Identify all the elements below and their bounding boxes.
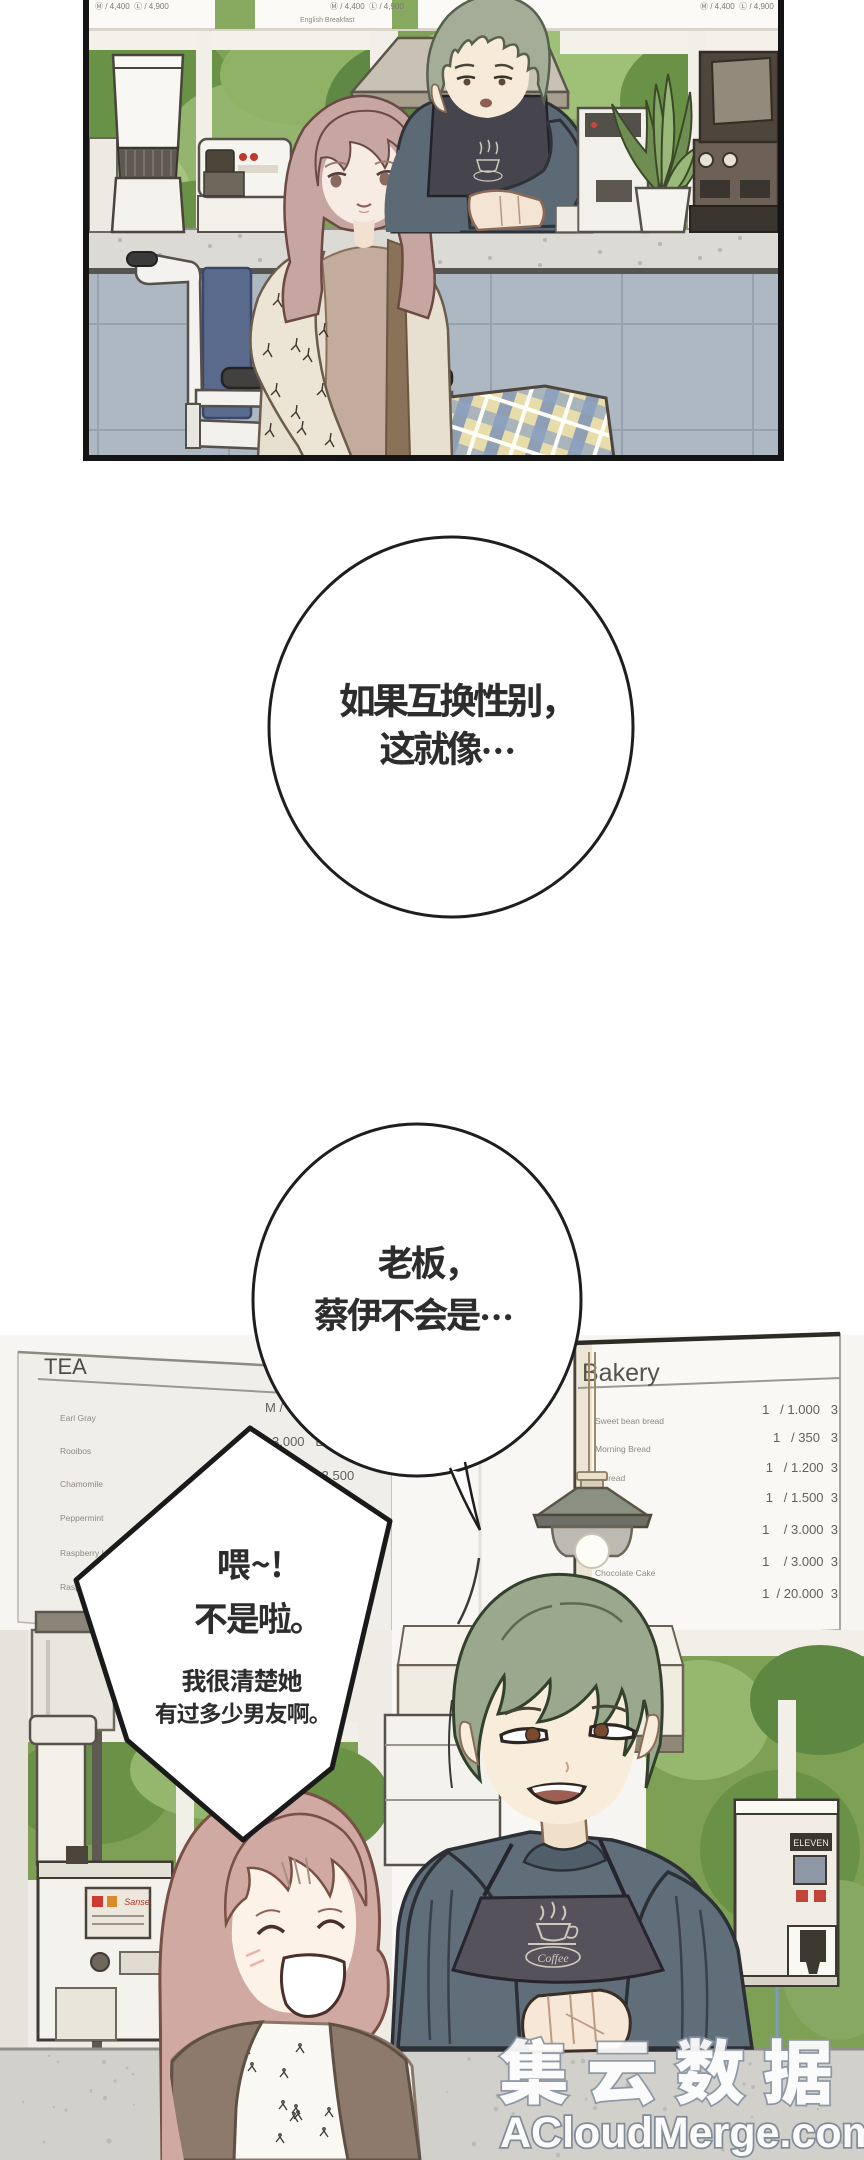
- svg-text:1 / 3.000 3: 1 / 3.000 3: [762, 1522, 838, 1537]
- svg-text:Bakery: Bakery: [582, 1359, 660, 1387]
- svg-text:Earl Gray: Earl Gray: [60, 1413, 97, 1423]
- svg-text:Chamomile: Chamomile: [60, 1479, 103, 1489]
- svg-text:English Breakfast: English Breakfast: [300, 17, 355, 24]
- svg-text:Chocolate Cake: Chocolate Cake: [595, 1568, 656, 1578]
- svg-text:ACloudMerge.com: ACloudMerge.com: [500, 2109, 864, 2157]
- svg-text:1 / 350 3: 1 / 350 3: [773, 1430, 838, 1445]
- svg-text:Ⓜ / 4,400 Ⓛ / 4,900: Ⓜ / 4,400 Ⓛ / 4,900: [95, 2, 169, 11]
- svg-text:ELEVEN: ELEVEN: [793, 1838, 829, 1848]
- svg-text:Coffee: Coffee: [537, 1951, 569, 1965]
- svg-text:Ⓜ / 4,400 Ⓛ / 4,900: Ⓜ / 4,400 Ⓛ / 4,900: [330, 2, 404, 11]
- svg-text:TEA: TEA: [44, 1354, 87, 1379]
- svg-text:1 / 1.500 3: 1 / 1.500 3: [766, 1490, 838, 1505]
- svg-text:Ⓜ / 4,400 Ⓛ / 4,900: Ⓜ / 4,400 Ⓛ / 4,900: [700, 2, 774, 11]
- svg-text:Rooibos: Rooibos: [60, 1446, 91, 1456]
- svg-text:1 / 3.000 3: 1 / 3.000 3: [762, 1554, 838, 1569]
- svg-text:1 / 1.000 3: 1 / 1.000 3: [762, 1402, 838, 1417]
- svg-text:1 / 1.200 3: 1 / 1.200 3: [766, 1460, 838, 1475]
- svg-text:Sanse: Sanse: [124, 1897, 150, 1907]
- svg-text:Morning Bread: Morning Bread: [595, 1444, 651, 1454]
- svg-text:Peppermint: Peppermint: [60, 1513, 104, 1523]
- svg-text:Sweet bean bread: Sweet bean bread: [595, 1416, 664, 1426]
- svg-text:1 / 20.000 3: 1 / 20.000 3: [762, 1586, 838, 1601]
